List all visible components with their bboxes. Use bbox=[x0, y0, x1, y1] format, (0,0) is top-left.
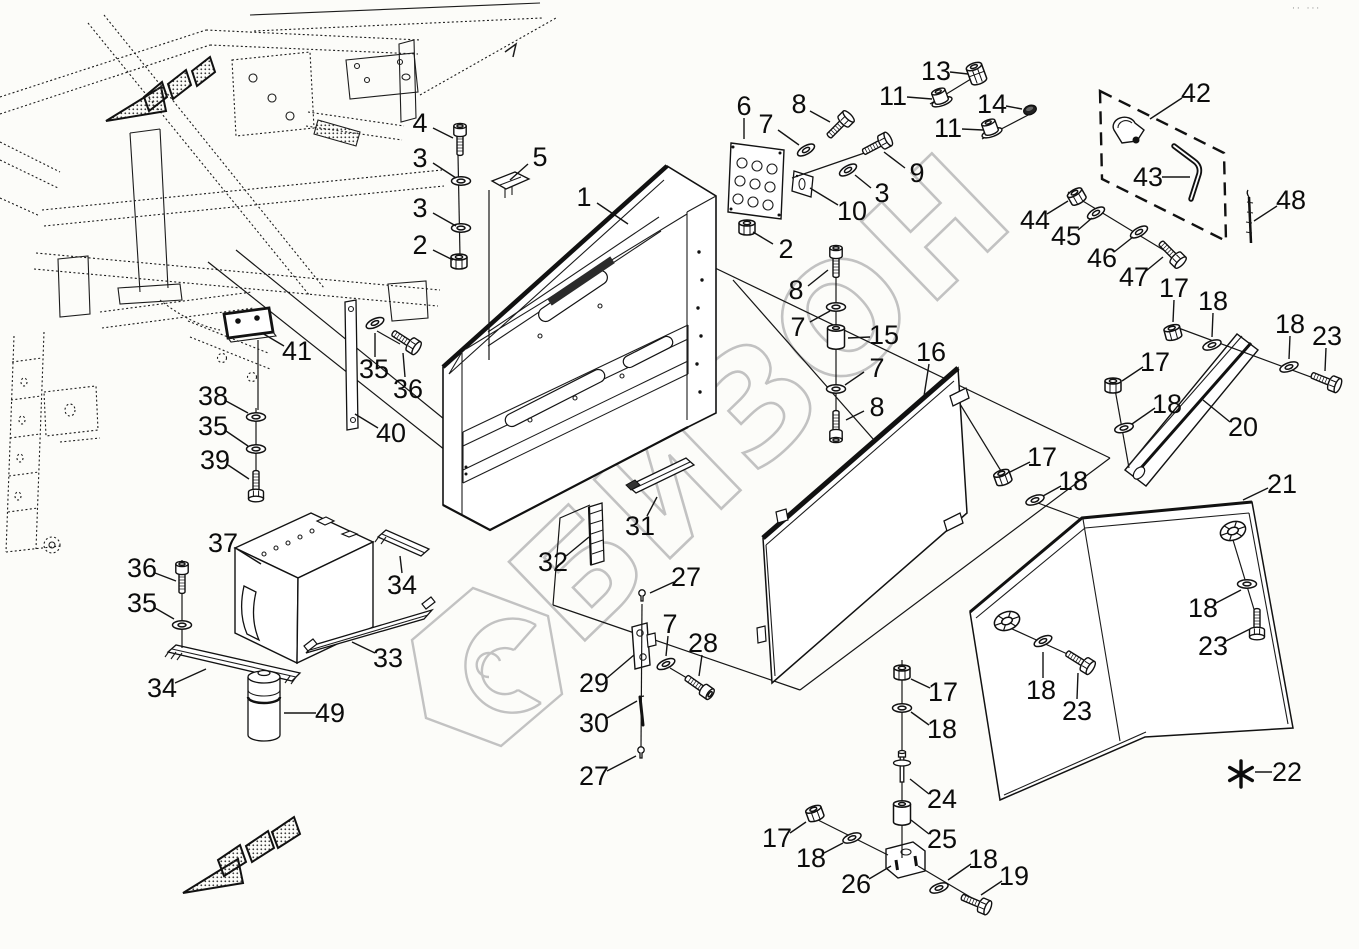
corner-marks: ·· ··· bbox=[1292, 4, 1321, 14]
callout-leader-line bbox=[226, 431, 248, 446]
part-callout-18: 18 bbox=[968, 844, 998, 874]
spacer-icon bbox=[894, 801, 911, 825]
cover-panel-part-21 bbox=[970, 502, 1293, 800]
part-callout-42: 42 bbox=[1181, 78, 1211, 108]
warning-arrow-decal-top bbox=[106, 57, 215, 121]
part-callout-40: 40 bbox=[376, 418, 406, 448]
nut-icon bbox=[805, 804, 825, 824]
part-callout-17: 17 bbox=[1140, 347, 1170, 377]
part-callout-17: 17 bbox=[928, 677, 958, 707]
warning-arrow-decal-bottom bbox=[183, 817, 300, 893]
part-callout-7: 7 bbox=[869, 353, 884, 383]
part-callout-25: 25 bbox=[927, 824, 957, 854]
callout-leader-line bbox=[1243, 488, 1268, 500]
pin27-icon bbox=[638, 747, 644, 758]
strip-part-40 bbox=[345, 300, 358, 430]
part-callout-10: 10 bbox=[837, 196, 867, 226]
callout-leader-line bbox=[175, 669, 206, 683]
part-callout-28: 28 bbox=[688, 628, 718, 658]
parts-diagram-canvas: БИЗОН bbox=[0, 0, 1359, 949]
part-callout-19: 19 bbox=[999, 861, 1029, 891]
callout-leader-line bbox=[907, 97, 932, 99]
bracket-part-26 bbox=[886, 842, 925, 878]
callout-leader-line bbox=[607, 756, 636, 771]
callout-leader-line bbox=[1150, 98, 1182, 119]
part-callout-29: 29 bbox=[579, 668, 609, 698]
part-callout-18: 18 bbox=[1058, 466, 1088, 496]
part-callout-15: 15 bbox=[869, 320, 899, 350]
hex-key-part-43 bbox=[1174, 146, 1199, 199]
part-callout-39: 39 bbox=[200, 445, 230, 475]
part-callout-18: 18 bbox=[1188, 593, 1218, 623]
callout-leader-line bbox=[824, 843, 843, 853]
clamp-rail-part-34-right bbox=[375, 530, 429, 556]
footnote-asterisk-icon bbox=[1230, 761, 1253, 787]
spacer-icon bbox=[828, 325, 845, 349]
callout-leader-line bbox=[155, 608, 174, 619]
part-callout-2: 2 bbox=[778, 234, 793, 264]
part-callout-18: 18 bbox=[1275, 309, 1305, 339]
washer-icon bbox=[173, 621, 192, 629]
part-callout-32: 32 bbox=[538, 547, 568, 577]
part-callout-45: 45 bbox=[1051, 221, 1081, 251]
washer-icon bbox=[1202, 338, 1223, 352]
callout-leader-line bbox=[790, 822, 806, 833]
part-callout-18: 18 bbox=[927, 714, 957, 744]
nut-icon bbox=[1105, 378, 1121, 393]
boltS-icon bbox=[454, 123, 466, 155]
callout-leader-line bbox=[778, 130, 799, 145]
callout-leader-line bbox=[810, 111, 830, 122]
part-callout-37: 37 bbox=[208, 528, 238, 558]
callout-leader-line bbox=[433, 213, 456, 226]
part-callout-18: 18 bbox=[1198, 286, 1228, 316]
callout-leader-line bbox=[869, 866, 891, 879]
flangenut-icon bbox=[978, 116, 1004, 140]
callout-leader-line bbox=[699, 655, 702, 676]
washer-icon bbox=[1086, 205, 1107, 222]
locknut-icon bbox=[965, 61, 987, 87]
part-callout-2: 2 bbox=[412, 230, 427, 260]
washer-icon bbox=[1114, 421, 1135, 434]
bolt-icon bbox=[823, 109, 856, 142]
part-callout-22: 22 bbox=[1272, 757, 1302, 787]
washer-icon bbox=[247, 445, 266, 453]
pin24-icon bbox=[894, 751, 911, 783]
part-callout-7: 7 bbox=[758, 109, 773, 139]
callout-leader-line bbox=[226, 401, 248, 413]
clip-part-5 bbox=[492, 172, 529, 198]
part-callout-27: 27 bbox=[671, 562, 701, 592]
nut-icon bbox=[1066, 186, 1087, 207]
callout-leader-line bbox=[155, 573, 176, 581]
washer-icon bbox=[452, 177, 471, 185]
part-callout-31: 31 bbox=[625, 511, 655, 541]
part-callout-27: 27 bbox=[579, 761, 609, 791]
part-callout-16: 16 bbox=[916, 337, 946, 367]
part-callout-17: 17 bbox=[1027, 442, 1057, 472]
nut-icon bbox=[993, 468, 1013, 488]
callout-leader-line bbox=[848, 337, 870, 338]
part-callout-3: 3 bbox=[874, 178, 889, 208]
part-callout-5: 5 bbox=[532, 142, 547, 172]
boltS-icon bbox=[682, 672, 715, 701]
part-callout-33: 33 bbox=[373, 643, 403, 673]
callout-leader-line bbox=[950, 72, 968, 74]
callout-leader-line bbox=[666, 636, 668, 656]
part-callout-8: 8 bbox=[869, 392, 884, 422]
part-callout-11: 11 bbox=[879, 81, 907, 111]
part-callout-18: 18 bbox=[1026, 675, 1056, 705]
part-callout-20: 20 bbox=[1228, 412, 1258, 442]
bolt-icon bbox=[1155, 237, 1188, 270]
part-callout-4: 4 bbox=[412, 108, 427, 138]
callout-leader-line bbox=[1006, 106, 1022, 109]
callout-leader-line bbox=[433, 250, 453, 260]
part-callout-46: 46 bbox=[1087, 243, 1117, 273]
part-callout-8: 8 bbox=[791, 89, 806, 119]
nut-icon bbox=[1163, 323, 1182, 342]
part-callout-26: 26 bbox=[841, 869, 871, 899]
bolt-icon bbox=[1309, 368, 1344, 394]
flangenut-icon bbox=[928, 85, 954, 109]
spray-can-part-49 bbox=[248, 671, 280, 742]
washer-icon bbox=[1238, 580, 1257, 588]
nut-icon bbox=[451, 254, 467, 269]
clamp-part-42 bbox=[1113, 117, 1144, 143]
part-callout-1: 1 bbox=[576, 182, 591, 212]
part-callout-34: 34 bbox=[387, 570, 417, 600]
part-callout-18: 18 bbox=[796, 843, 826, 873]
part-callout-18: 18 bbox=[1152, 389, 1182, 419]
washer-icon bbox=[893, 704, 912, 712]
part-callout-7: 7 bbox=[662, 609, 677, 639]
callout-leader-line bbox=[607, 701, 637, 718]
capnut-icon bbox=[1022, 104, 1037, 117]
part-callout-8: 8 bbox=[788, 275, 803, 305]
part-callout-23: 23 bbox=[1198, 631, 1228, 661]
part-callout-13: 13 bbox=[921, 56, 951, 86]
callout-leader-line bbox=[1173, 300, 1174, 322]
washer-icon bbox=[365, 315, 386, 331]
part-callout-21: 21 bbox=[1267, 469, 1297, 499]
part-callout-9: 9 bbox=[909, 158, 924, 188]
part-callout-35: 35 bbox=[359, 354, 389, 384]
callout-leader-line bbox=[433, 128, 453, 138]
callout-leader-line bbox=[1325, 348, 1326, 371]
part-callout-34: 34 bbox=[147, 673, 177, 703]
bolt-icon bbox=[249, 471, 264, 502]
rod-part-48 bbox=[1246, 190, 1253, 243]
part-callout-36: 36 bbox=[127, 553, 157, 583]
callout-leader-line bbox=[753, 232, 773, 244]
callout-leader-line bbox=[1254, 206, 1277, 221]
nut-icon bbox=[739, 220, 755, 235]
part-callout-11: 11 bbox=[934, 113, 962, 143]
part-callout-23: 23 bbox=[1312, 321, 1342, 351]
battery-part-37 bbox=[235, 513, 373, 663]
part-callout-44: 44 bbox=[1020, 205, 1050, 235]
boltS-icon bbox=[176, 561, 188, 593]
part-callout-24: 24 bbox=[927, 784, 957, 814]
callout-leader-line bbox=[1289, 336, 1290, 359]
part-callout-30: 30 bbox=[579, 708, 609, 738]
part-callout-38: 38 bbox=[198, 381, 228, 411]
callout-leader-line bbox=[262, 333, 284, 346]
part-callout-49: 49 bbox=[315, 698, 345, 728]
callout-leader-line bbox=[962, 129, 983, 130]
part-callout-14: 14 bbox=[977, 89, 1007, 119]
part-callout-43: 43 bbox=[1133, 162, 1163, 192]
perforated-plate-part-6 bbox=[728, 143, 784, 219]
parts-diagram-page: БИЗОН bbox=[0, 0, 1359, 949]
part-callout-17: 17 bbox=[1159, 273, 1189, 303]
washer-icon bbox=[929, 881, 950, 895]
callout-leader-line bbox=[1047, 201, 1068, 214]
part-callout-7: 7 bbox=[790, 312, 805, 342]
nut-icon bbox=[894, 665, 910, 680]
part-callout-35: 35 bbox=[198, 411, 228, 441]
hinge-plate-part-29 bbox=[632, 623, 656, 669]
part-callout-23: 23 bbox=[1062, 696, 1092, 726]
callout-leader-line bbox=[1212, 313, 1213, 337]
callout-leader-line bbox=[228, 465, 249, 479]
washer-icon bbox=[827, 303, 846, 311]
part-callout-35: 35 bbox=[127, 588, 157, 618]
part-callout-48: 48 bbox=[1276, 185, 1306, 215]
part-callout-47: 47 bbox=[1119, 262, 1149, 292]
part-callout-3: 3 bbox=[412, 143, 427, 173]
washer-icon bbox=[827, 385, 846, 393]
part-callout-6: 6 bbox=[736, 91, 751, 121]
strip-part-32 bbox=[589, 503, 604, 565]
washer-icon bbox=[247, 413, 266, 421]
part-callout-41: 41 bbox=[282, 336, 312, 366]
callout-leader-line bbox=[810, 188, 838, 205]
brand-logo-icon bbox=[412, 588, 562, 746]
part-callout-36: 36 bbox=[393, 374, 423, 404]
part-callout-17: 17 bbox=[762, 823, 792, 853]
callout-leader-line bbox=[352, 642, 375, 653]
part-callout-3: 3 bbox=[412, 193, 427, 223]
